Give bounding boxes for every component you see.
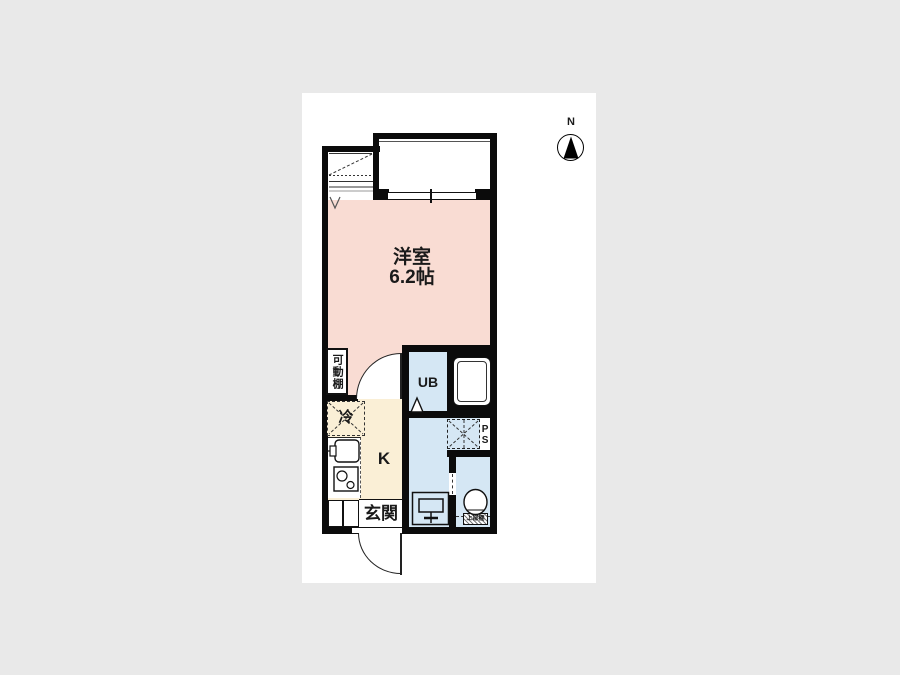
toilet-door-line [452, 474, 453, 494]
floor-plan-image: 可動棚 PS [0, 0, 900, 675]
washroom-area [409, 418, 450, 527]
compass-north-label: N [561, 116, 581, 129]
entrance-label: 玄関 [360, 503, 402, 525]
bathtub-icon [453, 357, 491, 406]
unit-bath-label: UB [414, 375, 442, 391]
kitchen-counter [328, 437, 361, 498]
entrance-door-leaf [400, 533, 402, 575]
movable-shelf-label: 可動棚 [326, 350, 348, 394]
balcony-railing-line [379, 141, 490, 142]
window-jamb-left [373, 189, 389, 200]
toilet-upper-shelf-label: 上部棚 [461, 515, 490, 523]
wall-nook-top [322, 146, 380, 152]
window-jamb-right [475, 189, 491, 200]
window-sliding [388, 192, 476, 200]
refrigerator-label: 冷 [335, 409, 357, 427]
pipe-space-box [447, 419, 480, 449]
balcony-area [379, 139, 490, 193]
pipe-space-label: PS [479, 420, 491, 449]
window-center-tick [430, 189, 432, 203]
main-room-size: 6.2帖 [372, 268, 452, 288]
wall-below-unit-bath [402, 411, 497, 418]
wall-above-toilet [447, 450, 497, 457]
main-room-name: 洋室 [372, 248, 452, 268]
wall-balcony-left [373, 133, 379, 192]
compass-circle [557, 134, 584, 161]
shoe-box-2 [343, 500, 359, 527]
shoe-box-1 [328, 500, 343, 527]
wall-center-vertical [402, 345, 409, 527]
wall-above-unit-bath [402, 345, 497, 352]
main-door-leaf [400, 353, 402, 399]
kitchen-label: K [370, 449, 398, 469]
storage-nook-area [328, 152, 373, 195]
wall-right [490, 133, 497, 534]
wall-bottom [322, 527, 497, 534]
wall-balcony-top [373, 133, 497, 139]
